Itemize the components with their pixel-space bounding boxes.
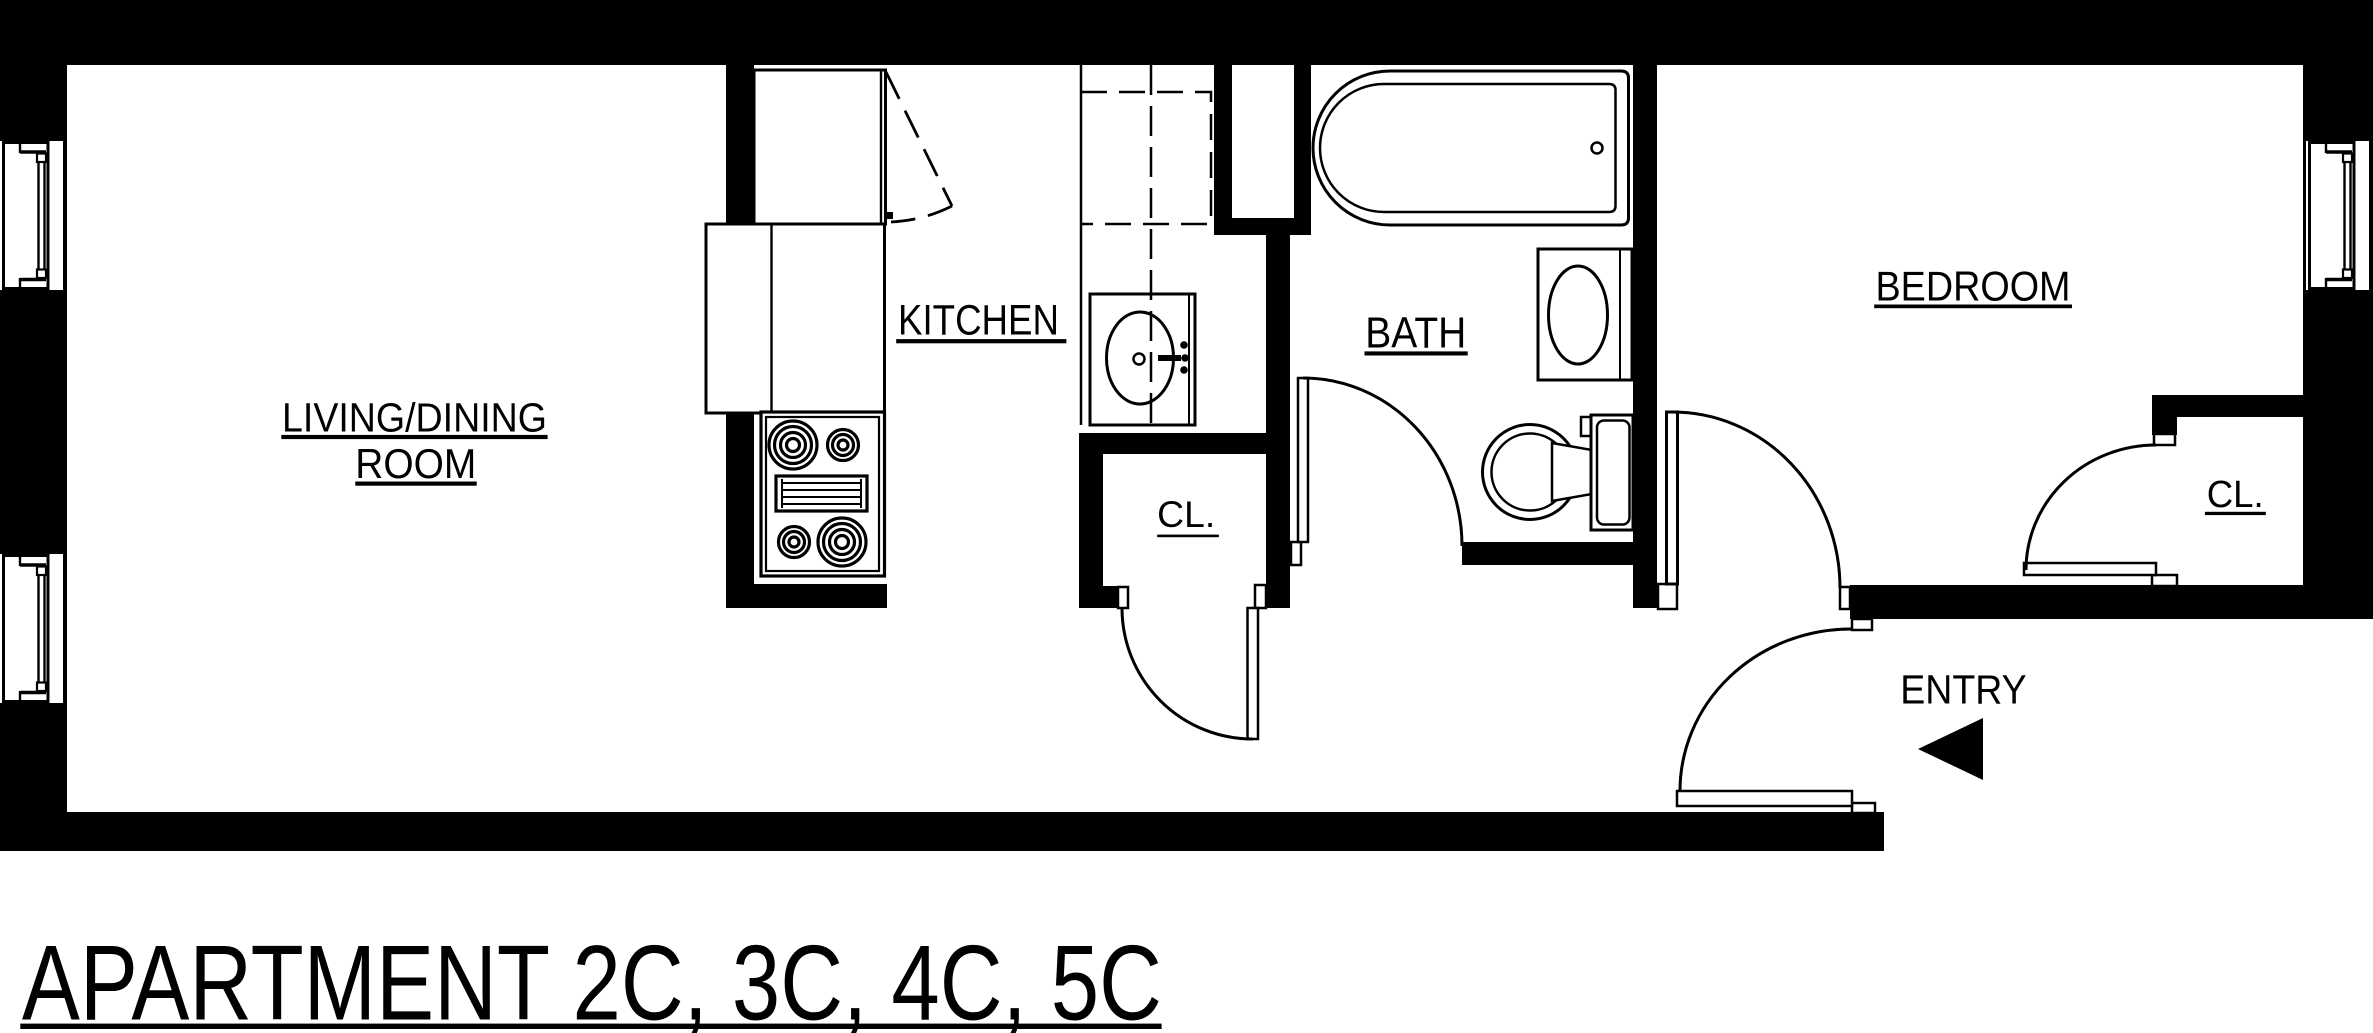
- svg-text:KITCHEN: KITCHEN: [898, 297, 1059, 345]
- svg-text:BATH: BATH: [1365, 309, 1466, 358]
- svg-text:ROOM: ROOM: [355, 440, 476, 487]
- svg-text:LIVING/DINING: LIVING/DINING: [282, 395, 547, 441]
- svg-text:BEDROOM: BEDROOM: [1876, 263, 2071, 310]
- svg-text:APARTMENT 2C, 3C, 4C, 5C: APARTMENT 2C, 3C, 4C, 5C: [22, 923, 1162, 1033]
- svg-text:ENTRY: ENTRY: [1900, 667, 2026, 713]
- svg-text:CL.: CL.: [2207, 474, 2264, 516]
- svg-text:CL.: CL.: [1157, 494, 1215, 535]
